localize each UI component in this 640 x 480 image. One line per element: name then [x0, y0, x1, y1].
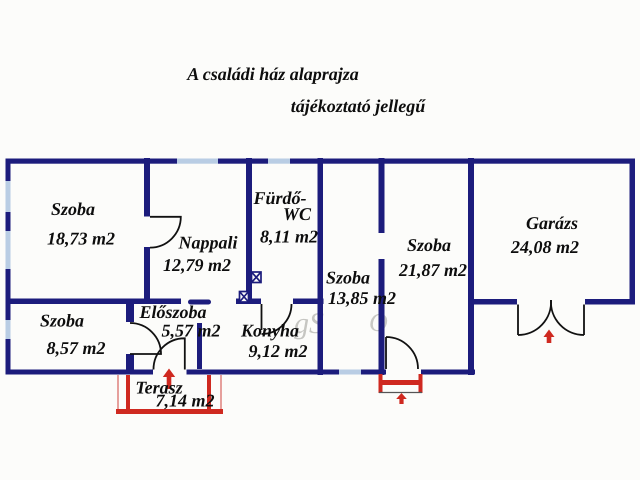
svg-text:9,12 m2: 9,12 m2 [248, 341, 307, 361]
svg-text:8,57 m2: 8,57 m2 [46, 338, 105, 358]
svg-text:Szoba: Szoba [407, 235, 451, 255]
svg-text:tájékoztató jellegű: tájékoztató jellegű [291, 96, 426, 116]
svg-text:Szoba: Szoba [40, 311, 84, 331]
svg-text:A családi ház alaprajza: A családi ház alaprajza [186, 64, 359, 84]
svg-text:5,57 m2: 5,57 m2 [161, 321, 220, 341]
svg-text:8,11 m2: 8,11 m2 [260, 227, 318, 247]
svg-text:24,08 m2: 24,08 m2 [510, 237, 579, 257]
svg-text:18,73 m2: 18,73 m2 [47, 229, 115, 249]
svg-text:WC: WC [283, 204, 312, 224]
svg-text:13,85 m2: 13,85 m2 [328, 288, 396, 308]
svg-text:7,14 m2: 7,14 m2 [155, 391, 214, 411]
svg-text:Konyha: Konyha [240, 321, 299, 341]
svg-text:Garázs: Garázs [526, 213, 578, 233]
svg-text:Nappali: Nappali [177, 233, 237, 253]
svg-text:Szoba: Szoba [51, 199, 95, 219]
svg-text:Szoba: Szoba [326, 268, 370, 288]
svg-text:12,79 m2: 12,79 m2 [163, 255, 231, 275]
svg-text:21,87 m2: 21,87 m2 [398, 260, 467, 280]
svg-text:Előszoba: Előszoba [138, 302, 206, 322]
